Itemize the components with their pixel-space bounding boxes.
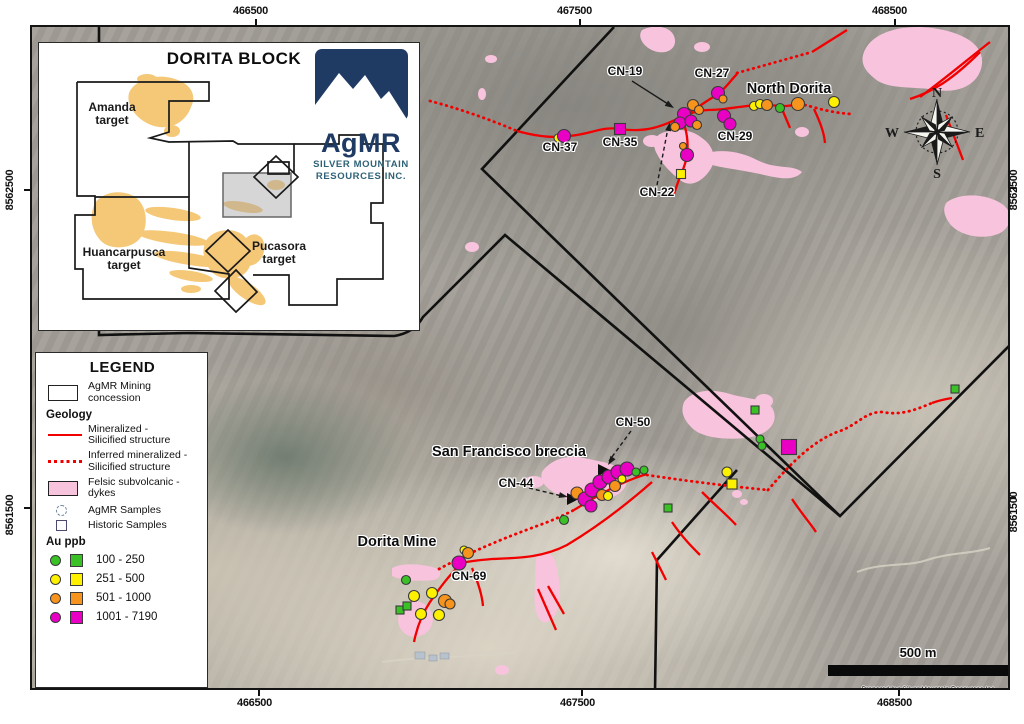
sample-point-historic: [727, 479, 737, 489]
sample-point-agmr: [445, 599, 455, 609]
inferred-line-swatch: [48, 460, 82, 463]
au-range-label: 100 - 250: [96, 554, 145, 566]
sample-point-agmr: [724, 118, 736, 130]
au-bucket-row: 251 - 500: [46, 573, 199, 586]
sample-point-agmr: [427, 588, 438, 599]
sample-point-historic: [403, 602, 411, 610]
geology-header: Geology: [46, 409, 199, 421]
sample-point-agmr: [722, 467, 732, 477]
sample-point-agmr: [585, 500, 597, 512]
au-circle-swatch: [50, 555, 61, 566]
felsic-swatch: [48, 481, 78, 496]
agmr-logo-mark: [315, 49, 408, 121]
mineralized-structures: [414, 30, 990, 642]
sample-point-agmr: [558, 130, 571, 143]
sample-point-historic: [751, 406, 759, 414]
sample-point-agmr: [640, 466, 648, 474]
scale-bar: 500 m: [812, 645, 1010, 676]
au-circle-swatch: [50, 593, 61, 604]
agmr-logo-company-1: SILVER MOUNTAIN: [313, 159, 409, 171]
target-label-pucasora: Pucasora target: [234, 240, 324, 267]
inset-overview-map: DORITA BLOCK Amanda target Huancarpusca …: [38, 42, 420, 331]
sample-point-agmr: [434, 610, 445, 621]
sample-point-agmr: [776, 104, 785, 113]
scale-bar-label: 500 m: [812, 645, 1010, 660]
target-label-huancarpusca: Huancarpusca target: [69, 246, 179, 273]
scale-bar-rect: [828, 665, 1008, 676]
legend-box: LEGEND AgMR Mining concession Geology Mi…: [35, 352, 208, 688]
au-square-swatch: [70, 554, 83, 567]
sample-point-agmr: [762, 100, 773, 111]
coord-bottom-2: 467500: [560, 697, 595, 709]
inferred-label: Inferred mineralized - Silicified struct…: [88, 450, 187, 474]
concession-swatch: [48, 385, 78, 401]
compass-w: W: [885, 126, 899, 141]
agmr-samples-label: AgMR Samples: [88, 505, 161, 517]
map-credits: Prepared by: Silver Mountain Resources I…: [822, 686, 1010, 690]
au-range-label: 1001 - 7190: [96, 611, 157, 623]
sample-point-agmr: [463, 548, 474, 559]
agmr-logo-brand: AgMR: [313, 130, 409, 157]
compass-s: S: [933, 167, 941, 182]
sample-point-agmr: [671, 123, 680, 132]
au-square-swatch: [70, 592, 83, 605]
compass-rose: N S W E: [885, 86, 984, 182]
inferred-structures: [430, 52, 932, 569]
coord-bottom-1: 466500: [237, 697, 272, 709]
sample-point-agmr: [416, 609, 427, 620]
sample-point-agmr: [618, 475, 626, 483]
coord-bottom-3: 468500: [877, 697, 912, 709]
sample-point-historic: [782, 440, 797, 455]
tick-right-1: [1010, 187, 1016, 189]
sample-point-agmr: [693, 121, 702, 130]
au-ppb-header: Au ppb: [46, 536, 199, 548]
sample-point-agmr: [829, 97, 840, 108]
sample-point-historic: [664, 504, 672, 512]
legend-title: LEGEND: [46, 359, 199, 376]
au-square-swatch: [70, 611, 83, 624]
sample-point-agmr: [402, 576, 411, 585]
sample-point-historic: [615, 124, 626, 135]
sample-point-agmr: [632, 468, 640, 476]
sample-point-agmr: [681, 149, 694, 162]
sample-point-historic: [951, 385, 959, 393]
agmr-logo: AgMR SILVER MOUNTAIN RESOURCES INC.: [313, 49, 409, 183]
tick-bottom-3: [898, 690, 900, 696]
buildings: [415, 652, 449, 661]
compass-e: E: [975, 126, 984, 141]
coord-top-2: 467500: [557, 5, 592, 17]
inset-title: DORITA BLOCK: [139, 49, 329, 69]
au-circle-swatch: [50, 612, 61, 623]
sample-point-historic: [677, 170, 686, 179]
sample-point-agmr: [560, 516, 569, 525]
au-circle-swatch: [50, 574, 61, 585]
sample-point-agmr: [719, 95, 727, 103]
au-bucket-rows: 100 - 250251 - 500501 - 10001001 - 7190: [46, 554, 199, 624]
compass-n: N: [932, 86, 942, 101]
au-range-label: 501 - 1000: [96, 592, 151, 604]
coord-left-2: 8561500: [4, 490, 16, 540]
felsic-label: Felsic subvolcanic - dykes: [88, 477, 180, 501]
sample-point-agmr: [695, 106, 704, 115]
au-bucket-row: 100 - 250: [46, 554, 199, 567]
historic-samples-swatch: [56, 520, 67, 531]
sample-point-agmr: [604, 492, 613, 501]
agmr-samples-swatch: [56, 505, 67, 516]
credits-line1: Prepared by: Silver Mountain Resources I…: [822, 686, 1010, 690]
coord-left-1: 8562500: [4, 165, 16, 215]
target-label-amanda: Amanda target: [67, 101, 157, 128]
sample-point-agmr: [452, 556, 466, 570]
map-report: 466500 467500 468500 466500 467500 46850…: [0, 0, 1024, 724]
agmr-logo-company-2: RESOURCES INC.: [313, 171, 409, 183]
tick-right-2: [1010, 497, 1016, 499]
sample-point-agmr: [758, 442, 766, 450]
au-bucket-row: 1001 - 7190: [46, 611, 199, 624]
au-bucket-row: 501 - 1000: [46, 592, 199, 605]
concession-label: AgMR Mining concession: [88, 381, 151, 405]
tick-bottom-1: [258, 690, 260, 696]
tick-bottom-2: [581, 690, 583, 696]
mineralized-line-swatch: [48, 434, 82, 436]
au-range-label: 251 - 500: [96, 573, 145, 585]
mineralized-label: Mineralized - Silicified structure: [88, 424, 170, 448]
sample-point-agmr: [409, 591, 420, 602]
coord-top-1: 466500: [233, 5, 268, 17]
au-square-swatch: [70, 573, 83, 586]
coord-top-3: 468500: [872, 5, 907, 17]
historic-samples-label: Historic Samples: [88, 520, 167, 532]
sample-point-agmr: [792, 98, 805, 111]
